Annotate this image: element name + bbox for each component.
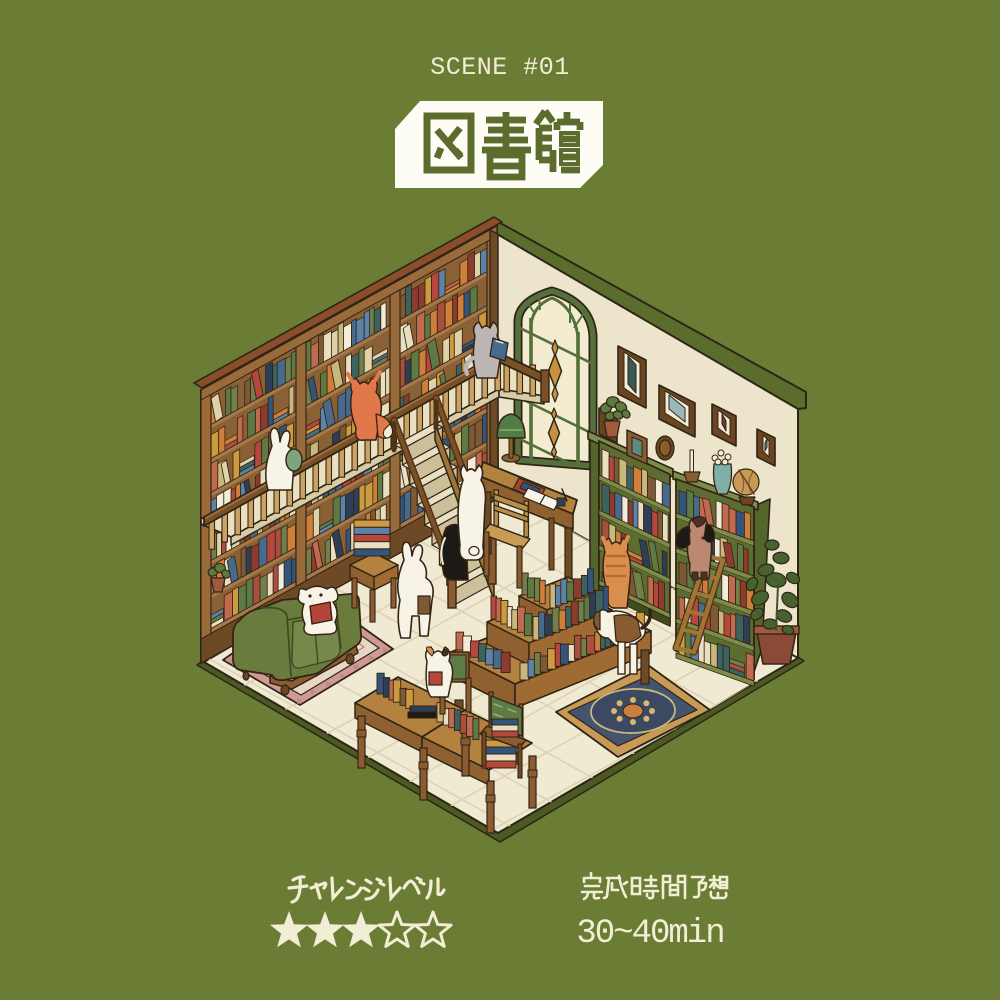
svg-text:30~40min: 30~40min [576, 915, 723, 953]
svg-text:SCENE #01: SCENE #01 [430, 53, 570, 82]
